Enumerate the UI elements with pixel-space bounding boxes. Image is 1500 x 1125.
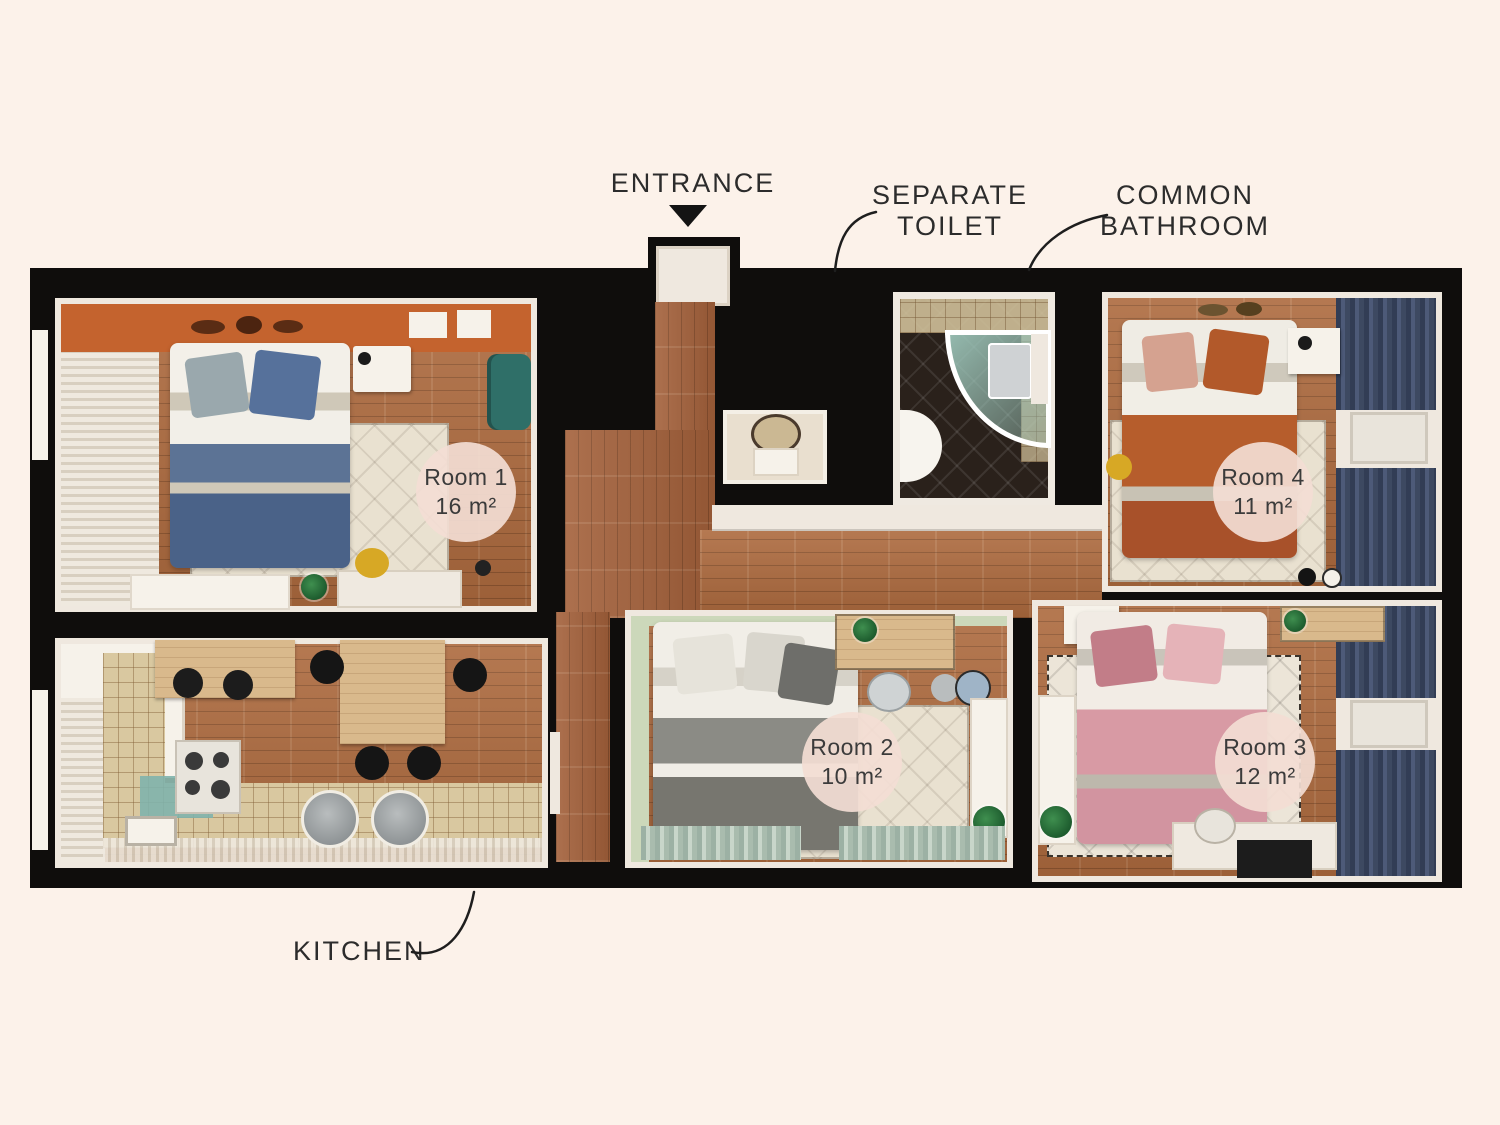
room-1-label: Room 1 16 m²	[416, 442, 516, 542]
kitchen-chair	[453, 658, 487, 692]
burner	[211, 780, 230, 799]
room-4-label: Room 4 11 m²	[1213, 442, 1313, 542]
separate-toilet-line2: TOILET	[840, 211, 1060, 242]
kitchen-door	[550, 732, 560, 814]
kitchen-chair	[355, 746, 389, 780]
entrance-door	[656, 246, 730, 306]
kitchen-table-2	[340, 640, 445, 744]
kitchen-chair	[173, 668, 203, 698]
room3-shelf-plant	[1284, 610, 1306, 632]
ceiling-decor	[236, 316, 262, 334]
separate-toilet	[723, 410, 827, 484]
room-area: 12 m²	[1234, 762, 1295, 791]
room3-plant	[1040, 806, 1072, 838]
burner	[185, 780, 200, 795]
common-bathroom-label: COMMON BATHROOM	[1060, 180, 1310, 242]
ceiling-decor	[1236, 302, 1262, 316]
burner	[213, 752, 229, 768]
room-1: Room 1 16 m²	[55, 298, 537, 612]
room2-desk-plant	[853, 618, 877, 642]
robot-vacuum-dock	[1322, 568, 1342, 588]
room4-nightstand	[1288, 328, 1340, 374]
pillow	[1162, 623, 1226, 685]
kitchen-chair	[310, 650, 344, 684]
room1-lamp	[358, 352, 371, 365]
ceiling-decor	[191, 320, 225, 334]
window-slit	[32, 330, 48, 460]
room4-window	[1350, 412, 1428, 464]
room1-floor-lamp	[475, 560, 491, 576]
common-bathroom-line2: BATHROOM	[1060, 211, 1310, 242]
room4-lamp	[1298, 336, 1312, 350]
kitchen-microwave	[125, 816, 177, 846]
kitchen	[55, 638, 548, 868]
pillow	[777, 642, 841, 706]
room3-desk-unit	[1237, 840, 1312, 878]
room1-desk	[337, 570, 462, 608]
room-2-label: Room 2 10 m²	[802, 712, 902, 812]
room-3-label: Room 3 12 m²	[1215, 712, 1315, 812]
kitchen-sink	[371, 790, 429, 848]
room-area: 11 m²	[1233, 492, 1293, 521]
room3-window	[1350, 700, 1428, 748]
room-3: Room 3 12 m²	[1032, 600, 1442, 882]
separate-toilet-line1: SEPARATE	[840, 180, 1060, 211]
kitchen-window-curtain	[61, 698, 105, 862]
pillow	[672, 633, 738, 695]
wall-frame	[409, 312, 447, 338]
entrance-label: ENTRANCE	[593, 168, 793, 199]
hallway-closet	[712, 505, 1102, 531]
separate-toilet-label: SEPARATE TOILET	[840, 180, 1060, 242]
ceiling-decor	[273, 320, 303, 333]
room-name: Room 1	[424, 463, 508, 492]
room-name: Room 4	[1221, 463, 1305, 492]
room1-bed	[170, 343, 350, 568]
kitchen-sink	[301, 790, 359, 848]
wall-frame	[457, 310, 491, 338]
pillow	[248, 349, 321, 421]
room-name: Room 2	[810, 733, 894, 762]
hallway-entrance-corridor	[655, 302, 715, 442]
room3-chair	[1194, 808, 1236, 844]
kitchen-stove	[175, 740, 241, 814]
entrance-arrow-icon	[669, 205, 707, 227]
room-2: Room 2 10 m²	[625, 610, 1013, 868]
room2-chair	[867, 672, 911, 712]
room-area: 16 m²	[435, 492, 496, 521]
room2-desk	[835, 614, 955, 670]
kitchen-label: KITCHEN	[293, 936, 413, 967]
robot-vacuum	[1298, 568, 1316, 586]
room-4: Room 4 11 m²	[1102, 292, 1442, 592]
room2-curtain	[641, 826, 801, 860]
kitchen-chair	[407, 746, 441, 780]
room-area: 10 m²	[821, 762, 882, 791]
kitchen-chair	[223, 670, 253, 700]
shower-tray	[988, 343, 1032, 399]
pillow	[184, 351, 250, 418]
bathroom	[893, 292, 1055, 505]
common-bathroom-line1: COMMON	[1060, 180, 1310, 211]
room2-curtain	[839, 826, 1005, 860]
room1-desk-chair	[355, 548, 389, 578]
room3-curtain-bottom	[1336, 750, 1436, 876]
window-slit	[32, 690, 48, 850]
toilet-vanity	[753, 448, 799, 476]
room4-stool	[1106, 454, 1132, 480]
hallway-mid	[565, 430, 715, 618]
room1-plant	[301, 574, 327, 600]
bathroom-basin	[900, 410, 942, 482]
bathroom-tile-wall	[900, 299, 1048, 333]
room-name: Room 3	[1223, 733, 1307, 762]
room1-armchair	[487, 354, 531, 430]
pillow	[1202, 328, 1270, 396]
kitchen-label-text: KITCHEN	[293, 936, 426, 966]
room4-curtain-bottom	[1336, 468, 1436, 586]
room1-dresser	[130, 574, 290, 610]
burner	[185, 752, 203, 770]
room4-curtain-top	[1336, 298, 1436, 410]
floor-plan-canvas: Room 1 16 m²	[0, 0, 1500, 1125]
pillow	[1090, 624, 1158, 687]
bathroom-door	[1031, 334, 1048, 404]
pillow	[1141, 331, 1199, 392]
ceiling-decor	[1198, 304, 1228, 316]
entrance-label-text: ENTRANCE	[611, 168, 776, 198]
hallway-kitchen-corridor	[556, 612, 610, 862]
room1-window-curtains	[61, 352, 159, 606]
